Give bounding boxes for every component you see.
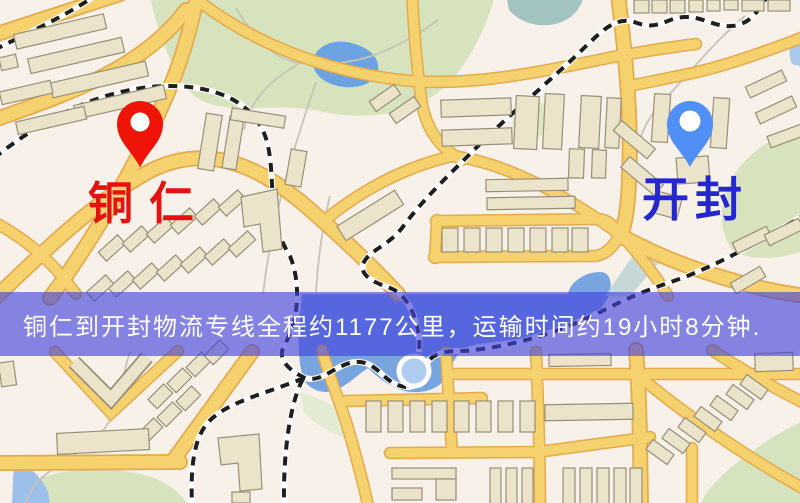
origin-label: 铜仁 <box>88 181 210 226</box>
pond <box>399 356 429 386</box>
route-info-banner: 铜仁到开封物流专线全程约1177公里，运输时间约19小时8分钟. <box>0 292 800 356</box>
map-canvas: 铜仁 开封 铜仁到开封物流专线全程约1177公里，运输时间约19小时8分钟. <box>0 0 800 503</box>
map-image <box>0 0 800 503</box>
destination-label: 开封 <box>642 176 748 223</box>
route-info-text: 铜仁到开封物流专线全程约1177公里，运输时间约19小时8分钟. <box>23 307 761 342</box>
